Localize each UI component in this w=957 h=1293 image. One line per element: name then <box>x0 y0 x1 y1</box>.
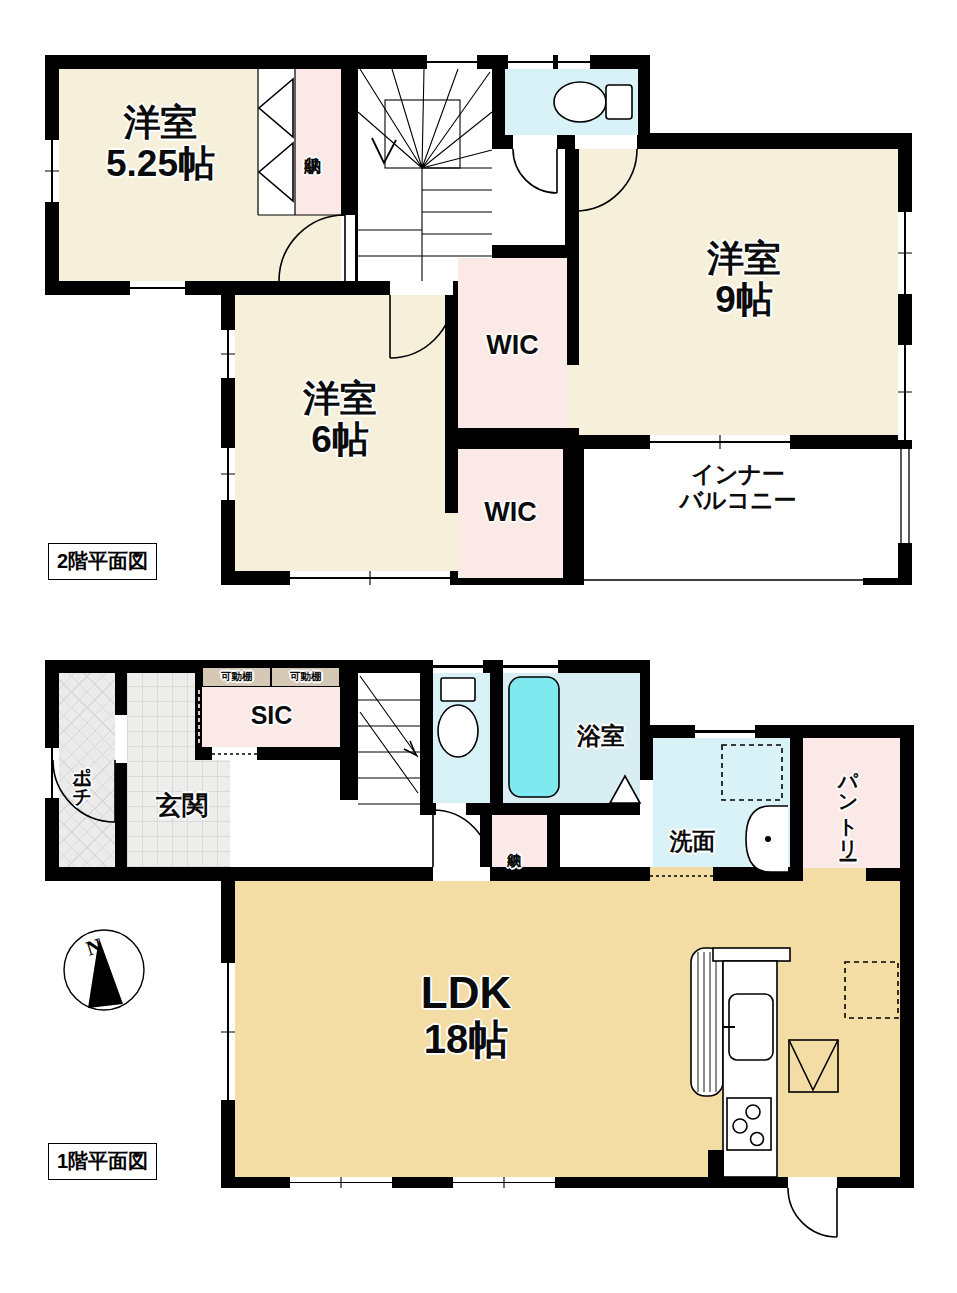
room-label-wic-lower: WIC <box>458 497 563 527</box>
opening-wic-lower <box>445 513 458 571</box>
opening-senmen-ldk <box>650 867 713 881</box>
door-gap-sic <box>212 747 257 760</box>
door-gap-9 <box>575 135 637 149</box>
room-label-shuno-1f: 収納 <box>506 818 522 866</box>
window <box>45 140 59 202</box>
shelf-label-left: 可動棚 <box>202 671 271 683</box>
window <box>503 660 558 673</box>
plan-title-1f: 1階平面図 <box>48 1143 157 1180</box>
balcony-line1: インナー <box>598 462 878 488</box>
window <box>898 345 912 440</box>
room-label-porch: ポーチ <box>72 716 93 834</box>
opening-wic-upper <box>567 365 579 428</box>
wall-shuno-left <box>480 815 492 867</box>
door-gap-6 <box>390 281 453 295</box>
balcony-line2: バルコニー <box>598 488 878 514</box>
door-gap-toilet-1f <box>436 803 466 815</box>
window <box>695 725 755 738</box>
stairs-1f-area <box>358 673 420 867</box>
room-label-9: 洋室 9帖 <box>624 238 864 321</box>
room-label-shuno-2f: 収納 <box>303 103 322 183</box>
window <box>508 55 553 69</box>
room-label-525: 洋室 5.25帖 <box>58 102 263 185</box>
opening-under-stairs <box>340 800 358 867</box>
room-525-name: 洋室 <box>58 102 263 143</box>
ldk-size: 18帖 <box>346 1017 586 1062</box>
window <box>290 571 450 585</box>
ldk-name: LDK <box>346 968 586 1017</box>
door-gap-porch <box>115 715 127 763</box>
floorplan-page: N 洋室 5.25帖 収納 洋室 9帖 WIC 洋室 6帖 WIC インナー バ… <box>0 0 957 1293</box>
room-2f-toilet <box>505 69 638 135</box>
window <box>433 660 483 673</box>
window <box>45 748 59 798</box>
room-label-senmen: 洗面 <box>650 829 735 855</box>
window <box>427 55 477 69</box>
plan-title-2f: 2階平面図 <box>48 543 157 580</box>
window <box>453 1177 555 1188</box>
compass-icon: N <box>64 930 144 1010</box>
window <box>221 963 235 1100</box>
room-9-name: 洋室 <box>624 238 864 279</box>
room-label-bath: 浴室 <box>556 723 646 750</box>
room-label-pantry: パントリー <box>837 742 859 864</box>
room-label-sic: SIC <box>224 701 319 729</box>
room-label-genkan: 玄関 <box>132 791 232 820</box>
door-gap-ldk-exit <box>788 1177 837 1188</box>
door-gap-525 <box>341 215 355 281</box>
balcony-edge-bottom <box>584 571 863 585</box>
hall-2f-landing <box>492 149 565 245</box>
room-label-ldk: LDK 18帖 <box>346 968 586 1062</box>
room-label-wic-upper: WIC <box>460 330 565 360</box>
door-gap-ldk <box>433 867 490 881</box>
window <box>558 55 590 69</box>
shelf-label-right: 可動棚 <box>271 671 340 683</box>
room-label-6: 洋室 6帖 <box>230 378 450 461</box>
opening-pantry-ldk <box>803 868 866 881</box>
window <box>898 212 912 294</box>
compass-north-label: N <box>83 933 105 961</box>
room-525-size: 5.25帖 <box>58 143 263 184</box>
room-6-name: 洋室 <box>230 378 450 419</box>
door-arc <box>788 1188 837 1237</box>
compass-needle-icon <box>88 938 123 1008</box>
window <box>221 330 235 378</box>
window <box>130 281 185 295</box>
hall-2f-stairs <box>358 69 492 281</box>
window <box>290 1177 392 1188</box>
balcony-edge-right <box>898 449 912 543</box>
room-label-balcony: インナー バルコニー <box>598 462 878 514</box>
room-1f-toilet <box>433 673 490 803</box>
wall-shuno-right <box>547 815 560 867</box>
door-gap-toilet-2f <box>513 135 557 149</box>
closet-door-strip-2f <box>258 69 295 215</box>
room-9-size: 9帖 <box>624 279 864 320</box>
window <box>650 435 790 449</box>
room-6-size: 6帖 <box>230 419 450 460</box>
